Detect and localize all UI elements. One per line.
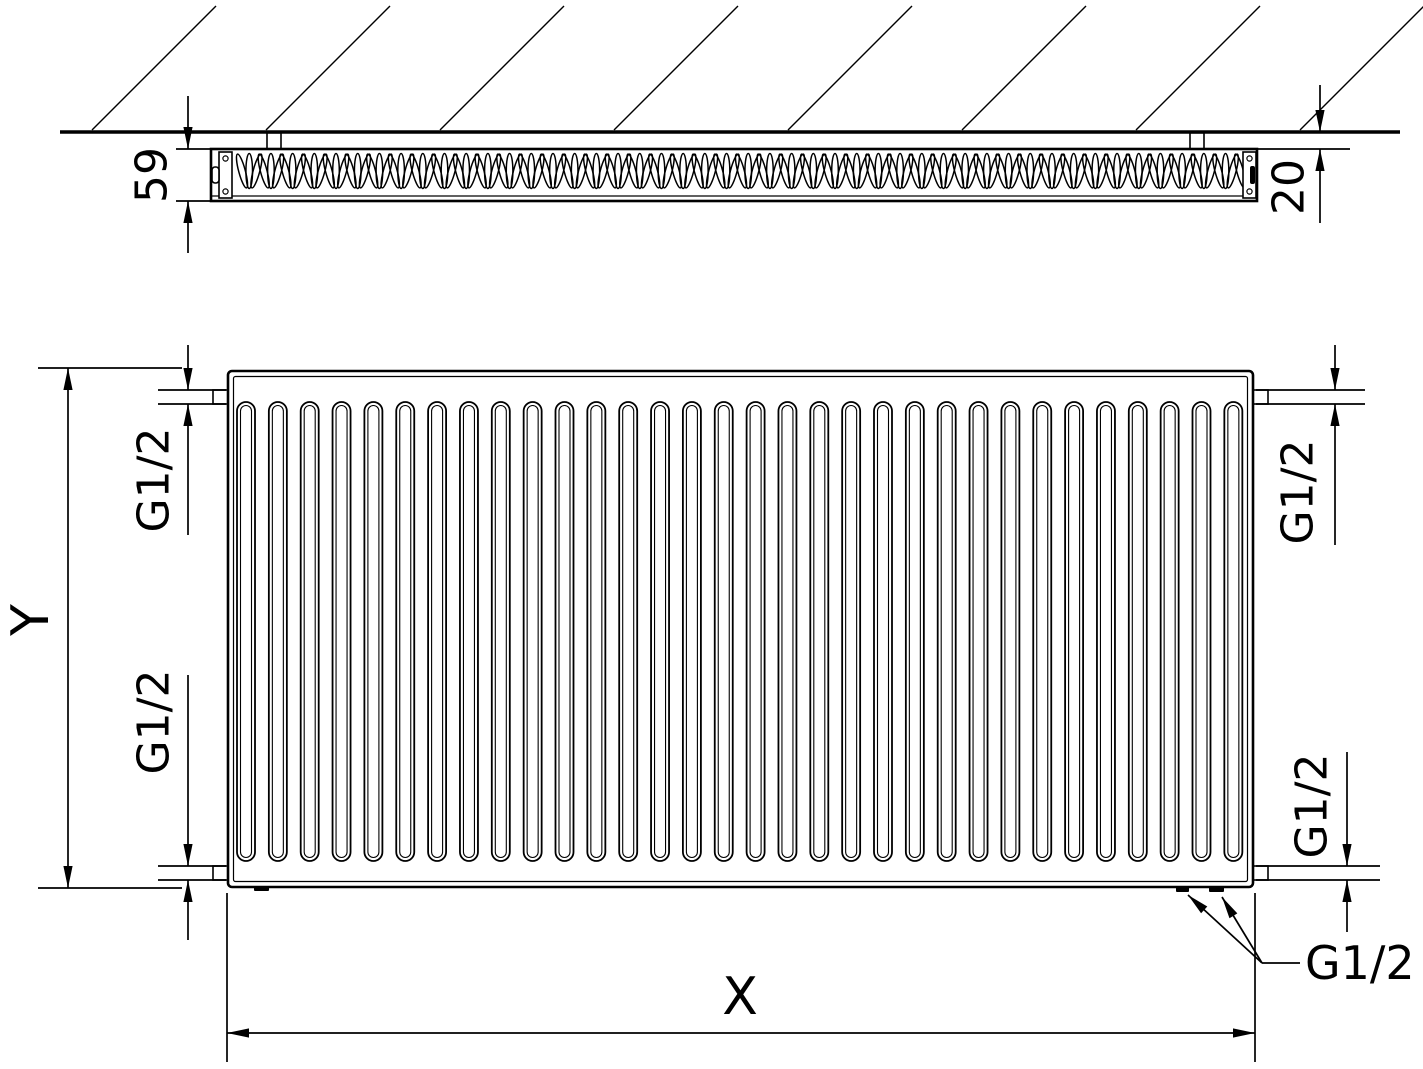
radiator-technical-drawing: 59 20 Y X xyxy=(0,0,1423,1069)
hatch-line xyxy=(440,6,564,130)
width-dim-label: X xyxy=(722,967,758,1027)
conn-top-left-label: G1/2 xyxy=(129,428,180,533)
hatch-line xyxy=(614,6,738,130)
dimension-width-X: X xyxy=(227,893,1255,1062)
dimension-conn-bottom-right: G1/2 xyxy=(1256,752,1380,932)
connection-stub-top-left xyxy=(213,390,229,404)
bottom-outlets-label: G1/2 xyxy=(1305,936,1415,990)
hatch-line xyxy=(92,6,216,130)
depth-dim-label: 59 xyxy=(127,147,178,203)
connection-stub-bottom-left xyxy=(213,866,229,880)
bottom-outlet-1 xyxy=(1176,886,1189,892)
wall-hatching xyxy=(92,6,1423,130)
end-plate-right xyxy=(1243,152,1256,198)
connection-stub-top-right xyxy=(1252,390,1268,404)
dimension-conn-top-left: G1/2 xyxy=(129,345,227,535)
hatch-line xyxy=(1300,6,1423,130)
conn-bottom-left-label: G1/2 xyxy=(129,670,180,775)
dimension-depth-59: 59 xyxy=(127,96,215,253)
wall-section xyxy=(60,6,1423,132)
hatch-line xyxy=(266,6,390,130)
leader-bottom-outlets: G1/2 xyxy=(1188,895,1415,990)
dimension-conn-top-right: G1/2 xyxy=(1256,345,1365,545)
dimension-wall-gap-20: 20 xyxy=(1258,85,1350,223)
side-plug-left xyxy=(212,167,219,183)
radiator-front-view xyxy=(213,371,1268,892)
conn-bottom-right-label: G1/2 xyxy=(1287,754,1338,859)
dimension-conn-bottom-left: G1/2 xyxy=(129,670,227,940)
side-plug-right xyxy=(1250,166,1255,184)
wall-gap-dim-label: 20 xyxy=(1264,159,1315,215)
hatch-line xyxy=(962,6,1086,130)
bottom-outlet-2 xyxy=(1209,886,1224,892)
hatch-line xyxy=(1136,6,1260,130)
connection-stub-bottom-right xyxy=(1252,866,1268,880)
hatch-line xyxy=(788,6,912,130)
bottom-tab-left xyxy=(254,886,269,891)
radiator-top-view xyxy=(211,133,1257,201)
conn-top-right-label: G1/2 xyxy=(1273,440,1324,545)
height-dim-label: Y xyxy=(1,604,61,637)
